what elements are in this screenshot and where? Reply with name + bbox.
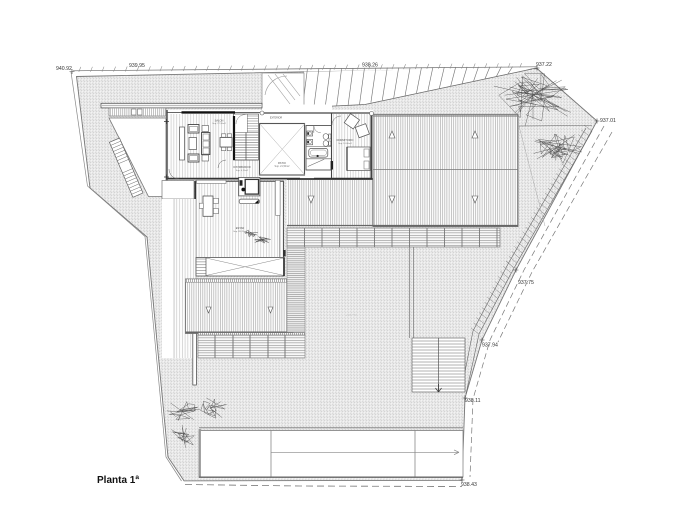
svg-text:937.94: 937.94 bbox=[482, 343, 498, 349]
svg-text:937.75: 937.75 bbox=[518, 280, 534, 286]
svg-text:937.01: 937.01 bbox=[600, 118, 616, 124]
svg-text:Sup. 16,80m2: Sup. 16,80m2 bbox=[338, 143, 352, 145]
svg-text:938.43: 938.43 bbox=[461, 482, 477, 488]
svg-text:Sup. 6,10m2: Sup. 6,10m2 bbox=[236, 170, 249, 172]
svg-text:EXTERIOR: EXTERIOR bbox=[270, 117, 282, 120]
svg-text:Planta 1ª: Planta 1ª bbox=[97, 475, 139, 486]
svg-text:Sup. 27,10m2: Sup. 27,10m2 bbox=[212, 123, 226, 125]
svg-text:937.22: 937.22 bbox=[536, 62, 552, 68]
svg-text:Sup. 21,50m2: Sup. 21,50m2 bbox=[275, 165, 291, 168]
svg-text:Sup. 28,70m2: Sup. 28,70m2 bbox=[233, 231, 247, 233]
svg-text:938.11: 938.11 bbox=[465, 398, 481, 404]
svg-text:940.92: 940.92 bbox=[56, 66, 72, 72]
svg-text:DISTRIBUIDOR: DISTRIBUIDOR bbox=[233, 166, 250, 169]
svg-text:DORMITORIO: DORMITORIO bbox=[337, 138, 354, 142]
svg-text:939.95: 939.95 bbox=[129, 63, 145, 69]
svg-text:938.26: 938.26 bbox=[362, 63, 378, 69]
svg-text:ESTAR: ESTAR bbox=[236, 226, 245, 230]
svg-text:+937.50: +937.50 bbox=[346, 313, 357, 317]
svg-text:SALON: SALON bbox=[215, 119, 224, 123]
